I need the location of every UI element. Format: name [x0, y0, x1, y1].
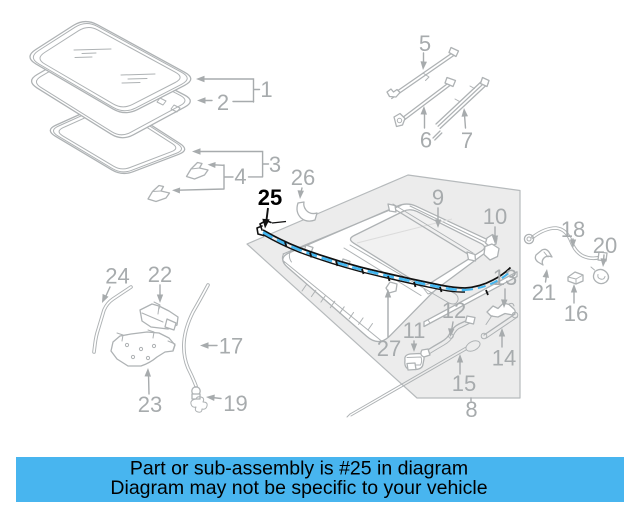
svg-text:3: 3 — [269, 152, 281, 177]
svg-text:19: 19 — [223, 391, 247, 416]
svg-text:6: 6 — [420, 128, 432, 153]
svg-text:20: 20 — [593, 233, 617, 258]
svg-text:12: 12 — [442, 298, 466, 323]
svg-text:18: 18 — [561, 217, 585, 242]
svg-text:22: 22 — [148, 262, 172, 287]
svg-text:5: 5 — [419, 31, 431, 56]
svg-text:27: 27 — [377, 336, 401, 361]
svg-text:25: 25 — [258, 185, 282, 210]
svg-text:21: 21 — [532, 280, 556, 305]
svg-text:8: 8 — [465, 397, 477, 422]
svg-text:9: 9 — [432, 185, 444, 210]
svg-text:Diagram may not be specific to: Diagram may not be specific to your vehi… — [110, 477, 487, 499]
svg-text:7: 7 — [461, 128, 473, 153]
svg-text:15: 15 — [452, 371, 476, 396]
svg-text:17: 17 — [219, 334, 243, 359]
svg-text:1: 1 — [260, 77, 272, 102]
svg-text:24: 24 — [105, 264, 129, 289]
svg-text:11: 11 — [403, 318, 426, 343]
svg-text:2: 2 — [217, 90, 229, 115]
svg-text:4: 4 — [234, 164, 246, 189]
svg-text:26: 26 — [291, 165, 315, 190]
svg-text:10: 10 — [483, 204, 507, 229]
svg-text:13: 13 — [493, 265, 517, 290]
svg-text:14: 14 — [492, 346, 516, 371]
svg-text:16: 16 — [564, 301, 588, 326]
svg-text:23: 23 — [138, 392, 162, 417]
